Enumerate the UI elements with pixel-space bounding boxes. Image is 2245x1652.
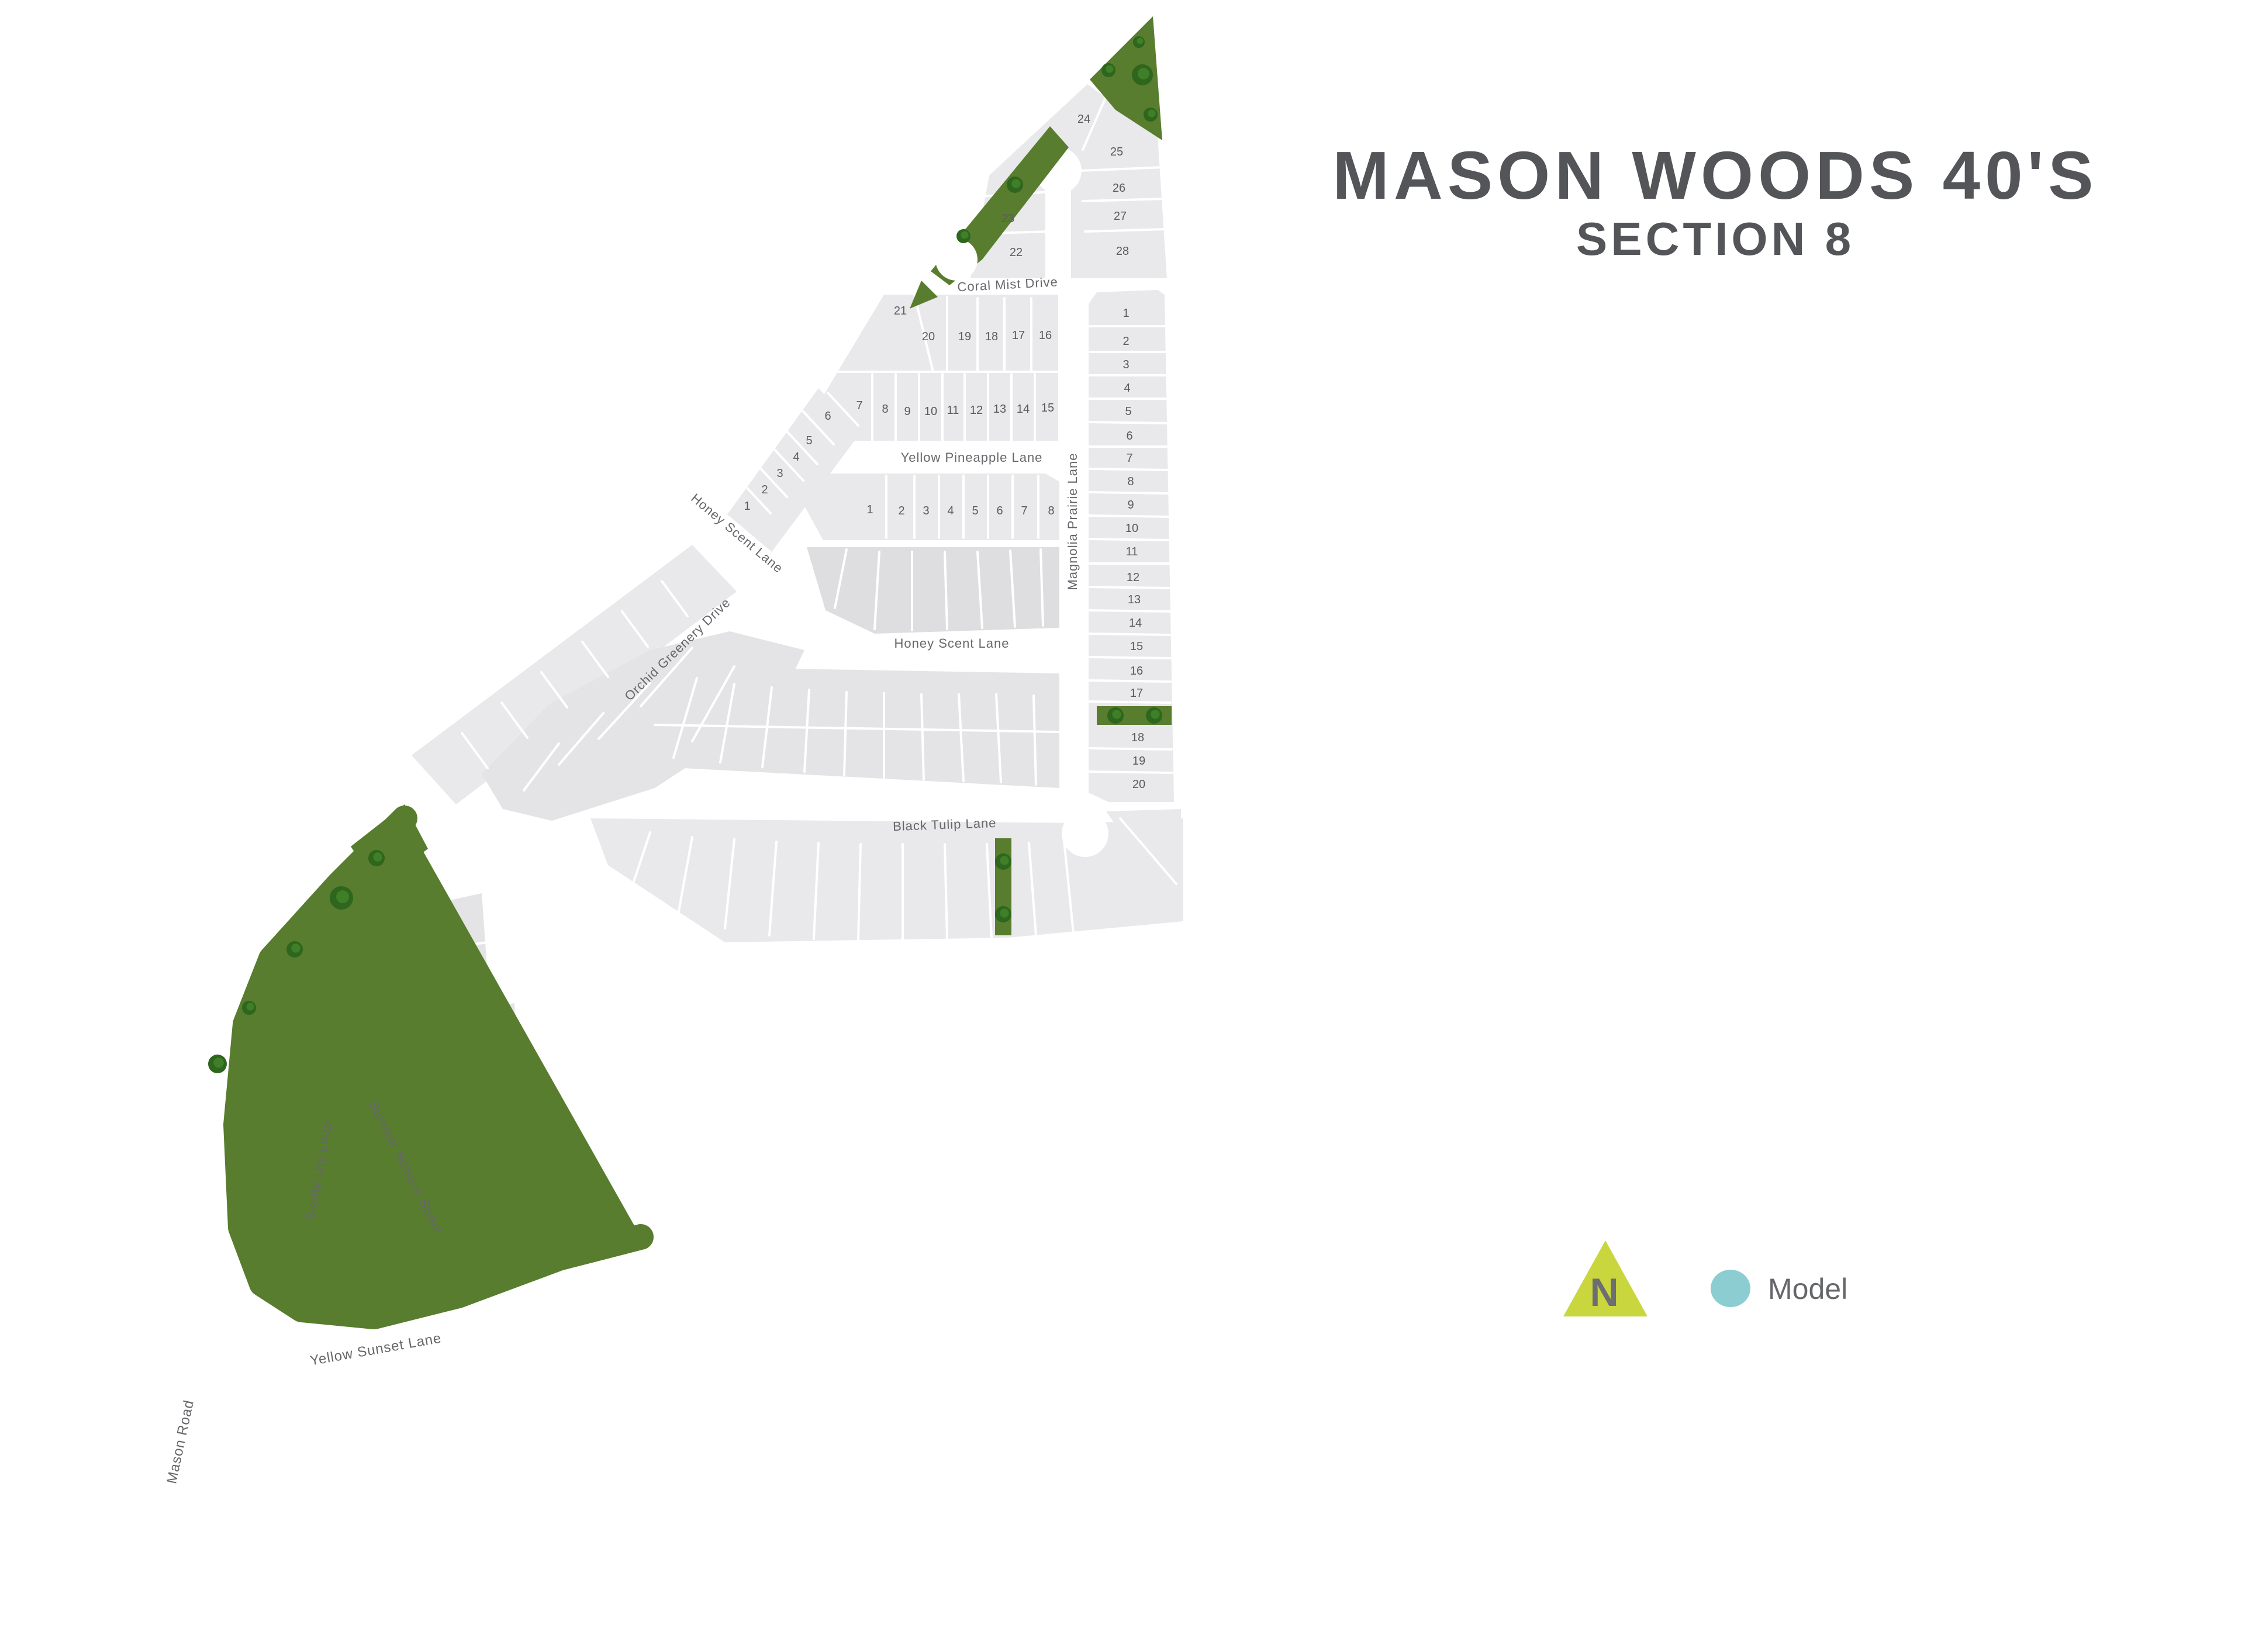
lot-number: 27 xyxy=(1114,210,1127,223)
lot-number: 7 xyxy=(856,399,862,412)
street-label-honey-scent-middle: Honey Scent Lane xyxy=(894,636,1009,651)
page-title: MASON WOODS 40'S xyxy=(1332,137,2098,213)
lot-divider xyxy=(1090,748,1172,749)
lot-number: 20 xyxy=(1132,778,1145,791)
tree-icon xyxy=(208,1055,227,1073)
section-subtitle: SECTION 8 xyxy=(1576,213,1854,265)
tree-icon xyxy=(286,941,303,958)
tree-icon xyxy=(995,853,1011,870)
lot-divider xyxy=(1090,701,1170,703)
lot-number: 19 xyxy=(1132,755,1145,768)
lot-divider xyxy=(1089,634,1170,635)
tree-icon xyxy=(956,229,970,243)
lot-number: 5 xyxy=(972,504,978,517)
lot-divider xyxy=(1089,422,1169,423)
lot-number: 2 xyxy=(898,504,904,517)
lot-number: 26 xyxy=(1113,182,1125,195)
lot-number: 17 xyxy=(1012,329,1025,342)
lot-number: 10 xyxy=(1125,522,1138,535)
lot-number: 10 xyxy=(924,405,937,418)
tree-icon xyxy=(242,1001,256,1015)
lot-number: 9 xyxy=(1127,499,1134,512)
tree-icon xyxy=(995,906,1011,922)
lot-number: 4 xyxy=(1124,382,1130,395)
lot-number: 14 xyxy=(1017,403,1030,416)
lot-number: 11 xyxy=(947,404,959,417)
lot-divider xyxy=(1089,516,1169,517)
tree-icon xyxy=(1107,707,1124,724)
lot-number: 1 xyxy=(866,503,873,516)
lot-number: 1 xyxy=(744,500,750,513)
tree-icon xyxy=(1132,64,1153,85)
lot-number: 20 xyxy=(922,330,935,343)
lot-number: 17 xyxy=(1130,687,1143,700)
tree-icon xyxy=(1133,36,1145,48)
greenbelt-southwest-band xyxy=(236,818,641,1316)
tree-icon xyxy=(368,850,385,866)
model-label: Model xyxy=(1768,1273,1847,1305)
lot-number: 9 xyxy=(904,405,910,418)
lot-number: 3 xyxy=(1122,358,1129,371)
lot-number: 6 xyxy=(1126,430,1132,443)
lot-divider xyxy=(1089,539,1169,540)
tree-icon xyxy=(1007,177,1023,193)
lot-number: 2 xyxy=(1122,335,1129,348)
street-label-mason-road: Mason Road xyxy=(164,1398,197,1485)
lot-number: 8 xyxy=(882,403,888,416)
lot-number: 12 xyxy=(970,404,983,417)
lot-number: 12 xyxy=(1127,571,1139,584)
lot-number: 15 xyxy=(1041,402,1054,414)
lot-divider xyxy=(1090,772,1172,773)
lot-number: 4 xyxy=(947,504,954,517)
lot-number: 19 xyxy=(958,330,971,343)
lot-number: 24 xyxy=(1077,113,1090,126)
lot-number: 28 xyxy=(1116,245,1129,258)
lot-number: 4 xyxy=(793,451,799,464)
street-label-magnolia-prairie: Magnolia Prairie Lane xyxy=(1065,452,1080,590)
lot-divider xyxy=(1089,492,1169,493)
site-plan-map: Coral Mist Drive Yellow Pineapple Lane H… xyxy=(0,0,2245,1652)
lot-divider xyxy=(1089,587,1170,588)
street-label-yellow-sunset: Yellow Sunset Lane xyxy=(309,1330,443,1369)
lot-number: 7 xyxy=(1021,504,1027,517)
lot-number: 5 xyxy=(1125,405,1131,418)
lot-number: 16 xyxy=(1130,665,1143,678)
lot-number: 2 xyxy=(761,483,768,496)
tree-icon xyxy=(330,886,353,910)
lot-number: 7 xyxy=(1126,452,1132,465)
lot-number: 11 xyxy=(1126,545,1138,558)
lot-number: 18 xyxy=(985,330,998,343)
model-marker-icon xyxy=(1711,1270,1750,1307)
lot-number: 25 xyxy=(1110,146,1123,158)
lot-number: 3 xyxy=(776,467,783,480)
title-block: MASON WOODS 40'S SECTION 8 xyxy=(1332,137,2098,265)
lot-number: 6 xyxy=(824,410,831,423)
lot-divider xyxy=(1089,657,1170,658)
lot-number: 6 xyxy=(996,504,1003,517)
lot-number: 5 xyxy=(806,434,812,447)
lot-number: 23 xyxy=(1001,212,1014,225)
tree-icon xyxy=(1101,63,1115,77)
tree-icon xyxy=(1144,108,1158,122)
lot-number: 8 xyxy=(1127,475,1134,488)
lot-number: 13 xyxy=(993,403,1006,416)
lot-number: 3 xyxy=(923,504,929,517)
lot-divider xyxy=(1089,469,1169,470)
coral-mist-west-culdesac xyxy=(935,239,978,281)
legend: N Model xyxy=(1563,1240,1847,1316)
lot-number: 13 xyxy=(1128,593,1141,606)
lot-number: 15 xyxy=(1130,640,1143,653)
lot-divider xyxy=(1089,610,1170,611)
north-label: N xyxy=(1590,1270,1618,1315)
lot-number: 18 xyxy=(1131,731,1144,744)
lot-number: 1 xyxy=(1122,307,1129,320)
lot-number: 8 xyxy=(1048,504,1054,517)
lot-divider xyxy=(1089,680,1170,682)
black-tulip-culdesac xyxy=(1062,810,1108,857)
tree-icon xyxy=(1146,707,1162,724)
lot-number: 21 xyxy=(894,305,907,317)
street-label-yellow-pineapple: Yellow Pineapple Lane xyxy=(901,450,1043,465)
lot-number: 16 xyxy=(1039,329,1052,342)
lot-number: 14 xyxy=(1129,617,1142,630)
lot-number: 22 xyxy=(1010,246,1023,259)
